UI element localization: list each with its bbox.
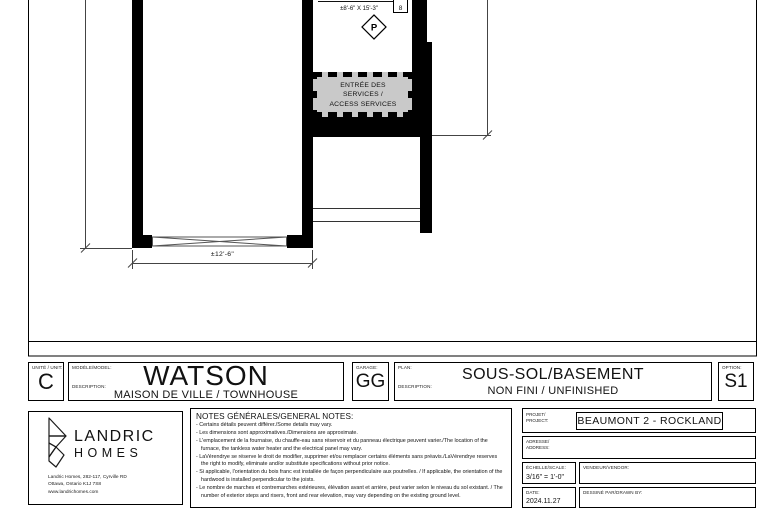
company-name: LANDRIC HOMES [74,429,155,461]
note-item: - Certains détails peuvent différer./Som… [196,422,506,430]
company-address-line1: Landric Homes, 282-117, Cyrville RD [48,474,127,481]
garage-label: GARAGE: [356,365,378,370]
note-item: - LaVérendrye se réserve le droit de mod… [196,454,506,469]
step-lines [313,209,420,222]
wall-left [132,0,143,248]
titleblock-option-box: OPTION: S1 [718,362,754,401]
services-label-line2: SERVICES / [316,90,410,99]
date-label: DATE: [526,490,540,495]
project-box: PROJET/ PROJECT: BEAUMONT 2 - ROCKLAND [522,408,756,433]
address-label-en: ADDRESS: [526,445,550,451]
wall-right-lower [420,137,432,233]
note-item: - Si applicable, l'orientation du bois f… [196,469,506,484]
titleblock-garage-box: GARAGE: GG [352,362,389,401]
model-description-label: DESCRIPTION: [72,384,106,389]
notes-title: NOTES GÉNÉRALES/GENERAL NOTES: [196,412,506,421]
plan-value: SOUS-SOL/BASEMENT [462,367,644,383]
company-name-line2: HOMES [74,446,155,461]
door-tag: 8 [393,0,408,13]
floor-plan-canvas: P [0,0,767,360]
company-name-line1: LANDRIC [74,429,155,446]
plan-description-label: DESCRIPTION: [398,384,432,389]
services-label-line3: ACCESS SERVICES [316,100,410,109]
walls [132,0,432,248]
note-item: - Les dimensions sont approximatives./Di… [196,430,506,438]
scale-label: ÉCHELLE/SCALE: [526,465,566,470]
window-symbol [152,235,287,248]
titleblock-model-box: MODÈLE/MODEL: DESCRIPTION: WATSON MAISON… [68,362,344,401]
services-entry-label: ENTRÉE DES SERVICES / ACCESS SERVICES [316,81,410,109]
model-description: MAISON DE VILLE / TOWNHOUSE [114,390,298,401]
note-item: - Le nombre de marches et contremarches … [196,485,506,500]
project-label: PROJET/ PROJECT: [526,412,548,423]
vendor-label: VENDEUR/VENDOR: [583,465,629,470]
project-label-en: PROJECT: [526,418,548,424]
wall-right-upper [412,0,427,42]
titleblock-plan-box: PLAN: DESCRIPTION: SOUS-SOL/BASEMENT NON… [394,362,712,401]
unit-value: C [38,371,54,393]
address-label-fr: ADRESSE/ [526,439,550,445]
unit-label: UNITÉ / UNIT: [32,365,62,370]
company-box: LANDRIC HOMES Landric Homes, 282-117, Cy… [28,411,183,505]
garage-value: GG [356,372,386,391]
project-value: BEAUMONT 2 - ROCKLAND [577,415,721,427]
column-symbol-letter: P [371,23,378,34]
scale-box: ÉCHELLE/SCALE: 3/16" = 1'-0" [522,462,576,484]
drawing-sheet: P UNFINISHED ROOM ±8'-6" X 15'-3" ENTRÉE… [0,0,767,511]
room-label-dimensions: ±8'-6" X 15'-3" [318,6,400,12]
note-item: - L'emplacement de la fournaise, du chau… [196,438,506,453]
width-dimension-label: ±12'-6" [180,251,265,258]
model-label: MODÈLE/MODEL: [72,365,112,370]
titleblock-unit-box: UNITÉ / UNIT: C [28,362,64,401]
vendor-box: VENDEUR/VENDOR: [579,462,756,484]
address-box: ADRESSE/ ADDRESS: [522,436,756,459]
landric-homes-logo-icon [42,417,72,477]
option-value: S1 [724,372,747,391]
project-label-fr: PROJET/ [526,412,548,418]
drawn-by-box: DESSINÉ PAR/DRAWN BY: [579,487,756,508]
model-value: WATSON [143,362,269,390]
company-address: Landric Homes, 282-117, Cyrville RD Otta… [48,474,127,496]
plan-description: NON FINI / UNFINISHED [488,386,619,397]
column-symbol: P [362,15,386,39]
general-notes-box: NOTES GÉNÉRALES/GENERAL NOTES: - Certain… [190,408,512,508]
drawn-by-label: DESSINÉ PAR/DRAWN BY: [583,490,643,495]
date-box: DATE: 2024.11.27 [522,487,576,508]
company-website: www.landrichomes.com [48,489,127,496]
scale-value: 3/16" = 1'-0" [526,474,564,481]
room-label-name: UNFINISHED ROOM [318,0,400,2]
plan-label: PLAN: [398,365,412,370]
company-address-line2: Ottawa, Ontario K1J 7S8 [48,481,127,488]
project-value-box: BEAUMONT 2 - ROCKLAND [576,412,723,430]
wall-horizontal [302,117,432,137]
date-value: 2024.11.27 [526,498,561,505]
services-label-line1: ENTRÉE DES [316,81,410,90]
option-label: OPTION: [722,365,742,370]
address-label: ADRESSE/ ADDRESS: [526,439,550,450]
